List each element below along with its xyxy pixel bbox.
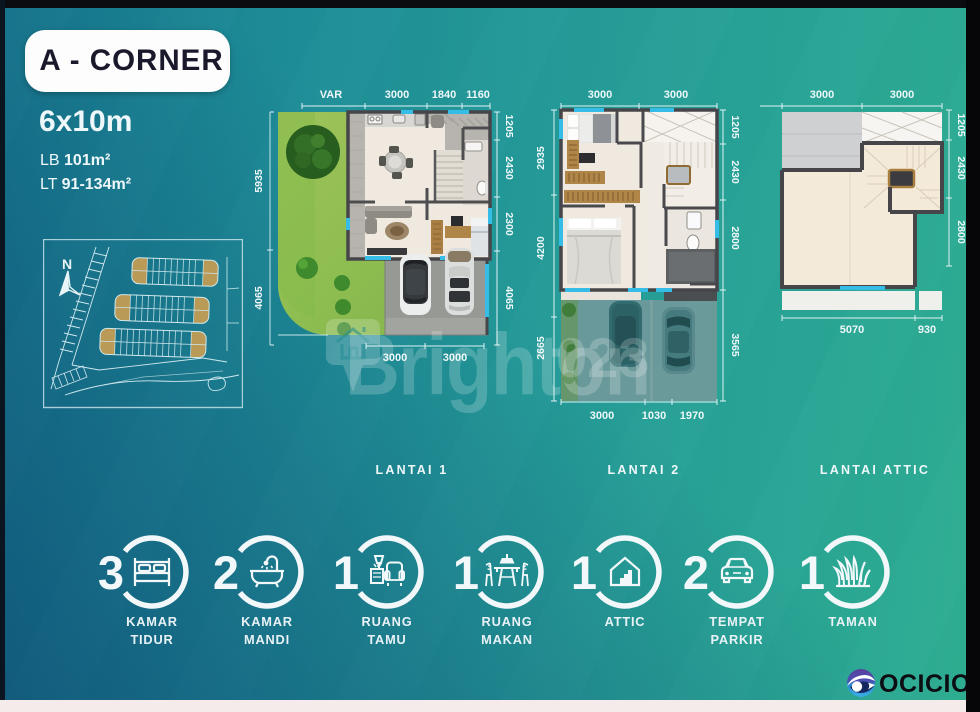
svg-text:TAMU: TAMU [367, 632, 406, 647]
svg-text:PARKIR: PARKIR [711, 632, 764, 647]
svg-text:N: N [62, 256, 72, 272]
svg-text:2: 2 [213, 546, 239, 599]
svg-text:2300: 2300 [503, 212, 515, 236]
svg-text:3000: 3000 [664, 89, 688, 101]
svg-text:3000: 3000 [810, 89, 834, 101]
svg-text:KAMAR: KAMAR [126, 614, 178, 629]
svg-text:2430: 2430 [503, 156, 515, 180]
svg-text:RUANG: RUANG [362, 614, 413, 629]
svg-text:2935: 2935 [535, 146, 547, 170]
svg-text:1840: 1840 [432, 89, 456, 101]
svg-text:1205: 1205 [503, 114, 515, 138]
svg-text:3000: 3000 [890, 89, 914, 101]
svg-text:930: 930 [918, 324, 936, 336]
svg-text:ATTIC: ATTIC [605, 614, 646, 629]
svg-text:TAMAN: TAMAN [828, 614, 877, 629]
svg-text:2: 2 [683, 546, 709, 599]
svg-text:2430: 2430 [729, 160, 741, 184]
svg-text:VAR: VAR [320, 89, 342, 101]
svg-text:4200: 4200 [535, 236, 547, 260]
svg-text:RUANG: RUANG [482, 614, 533, 629]
svg-text:5935: 5935 [255, 169, 265, 193]
svg-text:1: 1 [571, 546, 597, 599]
svg-text:1: 1 [453, 546, 479, 599]
svg-text:3000: 3000 [385, 89, 409, 101]
svg-text:1: 1 [799, 546, 825, 599]
svg-text:TIDUR: TIDUR [130, 632, 173, 647]
svg-text:MAKAN: MAKAN [481, 632, 533, 647]
svg-text:3000: 3000 [588, 89, 612, 101]
svg-text:4065: 4065 [255, 286, 265, 310]
svg-text:3565: 3565 [729, 333, 741, 357]
svg-text:1: 1 [333, 546, 359, 599]
svg-text:1205: 1205 [729, 115, 741, 139]
svg-text:3: 3 [98, 546, 124, 599]
svg-text:MANDI: MANDI [244, 632, 290, 647]
svg-text:KAMAR: KAMAR [241, 614, 293, 629]
svg-text:2800: 2800 [729, 226, 741, 250]
svg-text:OCICIO: OCICIO [879, 670, 971, 698]
svg-text:5070: 5070 [840, 324, 864, 336]
svg-text:1160: 1160 [466, 89, 490, 101]
svg-text:TEMPAT: TEMPAT [709, 614, 765, 629]
